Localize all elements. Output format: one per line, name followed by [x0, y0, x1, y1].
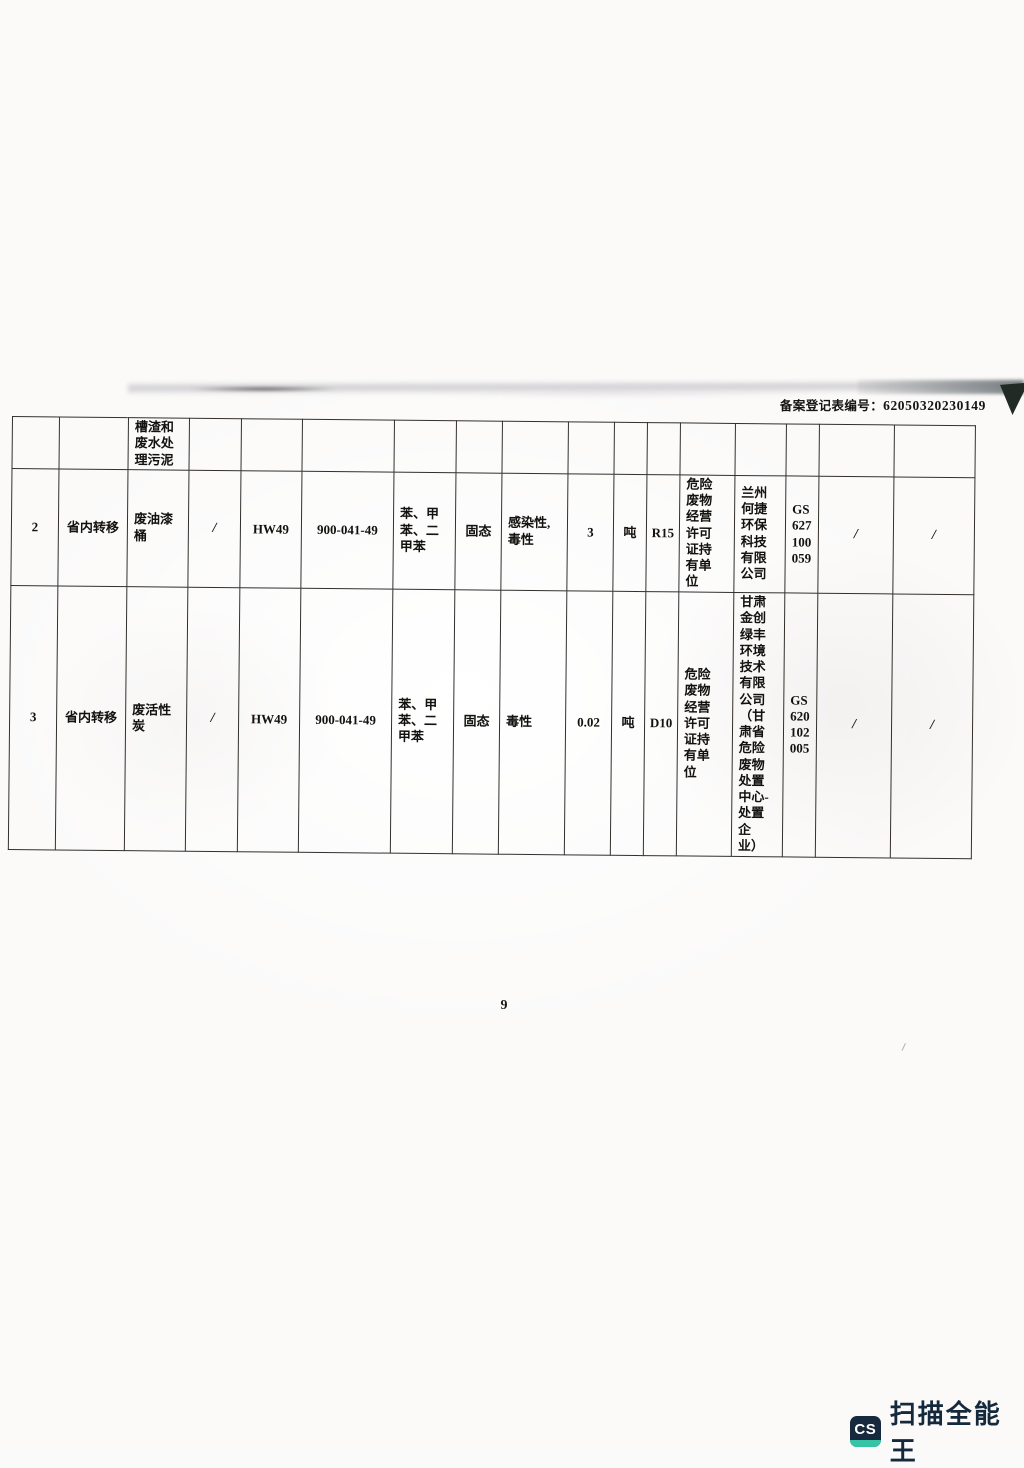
- table-cell: 危险 废物 经营 许可 证持 有单 位: [676, 591, 734, 856]
- scan-edge-shadow-mid: [400, 389, 840, 398]
- table-cell: 危险 废物 经营 许可 证持 有单 位: [679, 475, 735, 592]
- table-cell: [568, 422, 614, 474]
- table-cell: 省内转移: [55, 585, 127, 850]
- registration-number-line: 备案登记表编号：62050320230149: [780, 395, 986, 414]
- table-cell: HW49: [237, 587, 301, 852]
- scanned-page: 备案登记表编号：62050320230149 槽渣和 废水处 理污泥: [0, 0, 1024, 1449]
- table-cell: 槽渣和 废水处 理污泥: [128, 418, 189, 470]
- table-cell: R15: [646, 474, 680, 591]
- table-cell: [394, 420, 456, 472]
- table-cell: 省内转移: [58, 469, 128, 586]
- camscanner-name: 扫描全能王: [890, 1394, 1024, 1468]
- table-cell: D10: [643, 591, 679, 855]
- table-cell: [735, 423, 786, 475]
- table-cell: [680, 423, 735, 475]
- table-row: 2 省内转移 废油漆 桶 / HW49 900-041-49 苯、甲 苯、二 甲…: [11, 468, 975, 594]
- table-row: 3 省内转移 废活性 炭 / HW49 900-041-49 苯、甲 苯、二 甲…: [8, 585, 973, 858]
- table-cell: 900-041-49: [298, 588, 393, 853]
- table-cell: 0.02: [564, 590, 613, 854]
- table-cell: 吨: [610, 591, 646, 855]
- table-cell: 2: [11, 468, 59, 585]
- scan-edge-shadow-right: [858, 380, 1024, 394]
- table-cell: 苯、甲 苯、二 甲苯: [390, 589, 455, 854]
- registration-number: 62050320230149: [883, 398, 986, 413]
- table-cell: /: [893, 477, 975, 595]
- table-cell: 苯、甲 苯、二 甲苯: [393, 472, 456, 589]
- table-cell: /: [818, 476, 894, 593]
- table-cell: 3: [8, 585, 58, 849]
- waste-transfer-table: 槽渣和 废水处 理污泥 2 省内转移 废油漆 桶 /: [8, 416, 975, 859]
- table-cell: 毒性: [498, 590, 567, 855]
- table-cell: [786, 424, 819, 476]
- table-cell: [456, 421, 502, 473]
- table-cell: /: [188, 470, 241, 587]
- table-cell: [647, 423, 680, 475]
- table-cell: 固态: [452, 589, 501, 853]
- table-cell: /: [815, 593, 893, 858]
- table-cell: [302, 419, 394, 472]
- table-row: 槽渣和 废水处 理污泥: [12, 417, 975, 478]
- scan-corner-fold: [1000, 383, 1024, 415]
- table-cell: [502, 421, 568, 473]
- table-cell: [59, 417, 128, 469]
- table-cell: 900-041-49: [301, 471, 394, 589]
- table-cell: 固态: [455, 473, 502, 590]
- camscanner-logo-icon: CS: [850, 1416, 881, 1447]
- table-cell: GS 620 102 005: [782, 592, 818, 856]
- camscanner-badge-text: CS: [854, 1421, 876, 1438]
- page-number: 9: [492, 998, 516, 1014]
- scan-edge-shadow-dark: [166, 386, 361, 392]
- table-cell: 感染性, 毒性: [501, 473, 568, 590]
- table-cell: 甘肃 金创 绿丰 环境 技术 有限 公司 （甘 肃省 危险 废物 处置 中心- …: [731, 592, 785, 856]
- table-cell: 废活性 炭: [124, 586, 188, 851]
- scan-speck: [902, 1043, 911, 1053]
- camscanner-watermark: CS 扫描全能王: [850, 1394, 1024, 1468]
- table-cell: [189, 418, 241, 470]
- registration-label: 备案登记表编号：: [780, 399, 883, 413]
- table-cell: 兰州 何捷 环保 科技 有限 公司: [734, 475, 786, 592]
- table-cell: GS 627 100 059: [785, 476, 819, 593]
- table-cell: 3: [567, 474, 614, 591]
- table-cell: /: [890, 593, 974, 858]
- table-cell: /: [185, 587, 240, 851]
- table-cell: [819, 424, 894, 476]
- table-cell: 废油漆 桶: [127, 469, 189, 586]
- table-cell: [12, 417, 59, 469]
- table-cell: HW49: [240, 470, 302, 587]
- table-cell: [614, 422, 647, 474]
- table-cell: 吨: [613, 474, 647, 591]
- camscanner-logo-teal-strip: [850, 1440, 881, 1447]
- table-cell: [241, 419, 302, 471]
- table-cell: [894, 425, 975, 478]
